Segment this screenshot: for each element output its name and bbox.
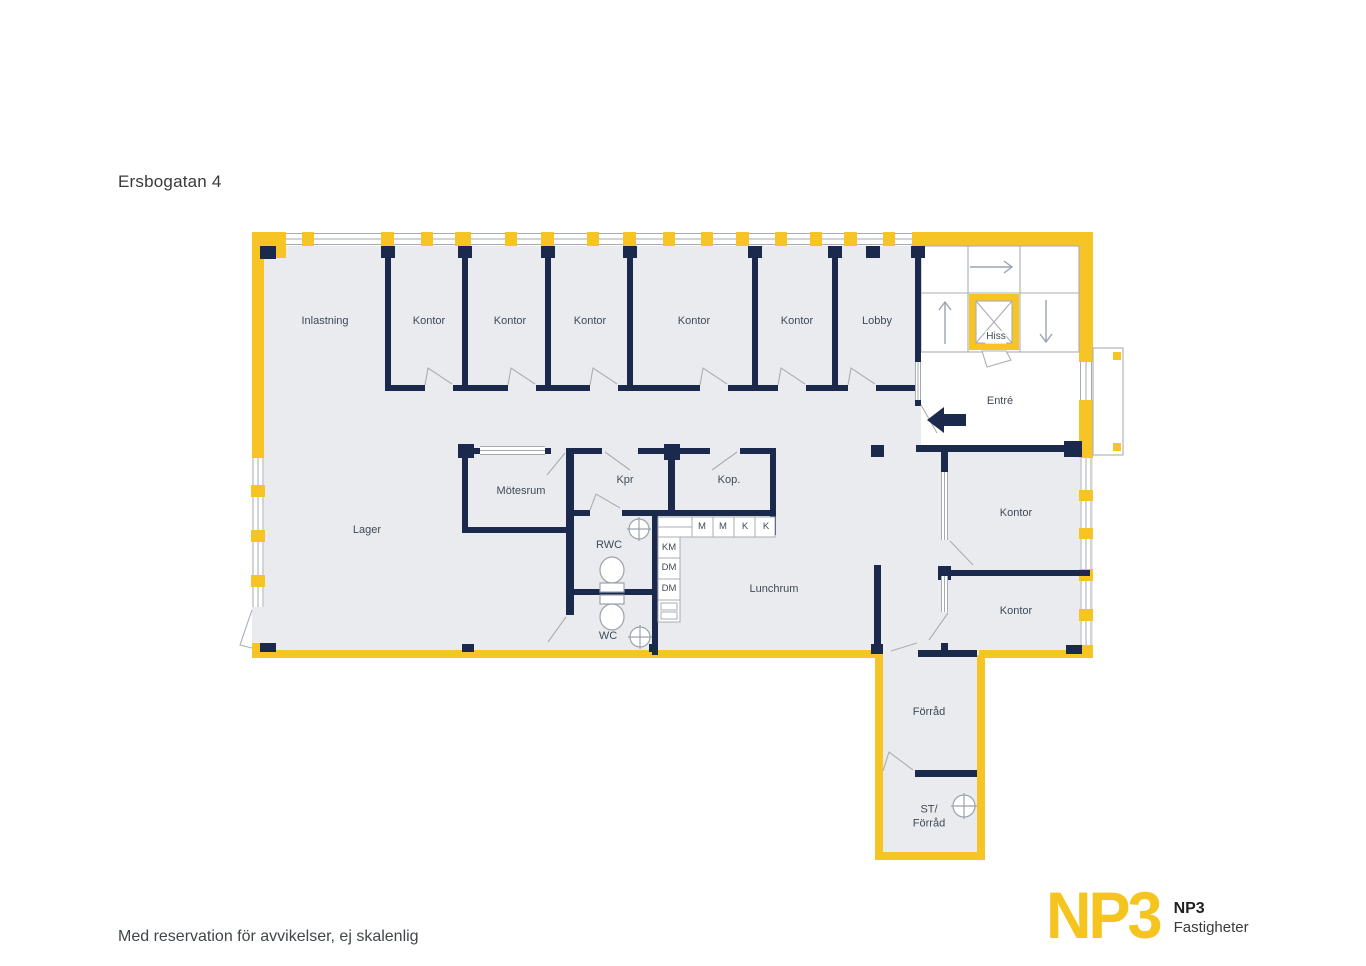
room-label-kpr: Kpr — [616, 474, 633, 488]
room-label-forrad: Förråd — [913, 706, 945, 720]
entrance-canopy — [1093, 348, 1123, 455]
room-label-motesrum: Mötesrum — [497, 485, 546, 499]
np3-logo-company: NP3 — [1174, 900, 1249, 918]
appliance-label-dm-2: DM — [662, 583, 677, 595]
room-label-hiss: Hiss — [985, 331, 1006, 344]
rwc-toilet — [600, 557, 624, 592]
room-label-kontor-1: Kontor — [413, 315, 445, 329]
room-label-st-forrad-line1: ST/ — [913, 803, 945, 817]
appliance-label-m-2: M — [719, 521, 727, 533]
room-label-wc: WC — [599, 630, 617, 644]
appliance-label-k-2: K — [763, 521, 769, 533]
room-label-kontor-7: Kontor — [1000, 605, 1032, 619]
disclaimer-text: Med reservation för avvikelser, ej skale… — [118, 928, 419, 946]
room-label-kontor-3: Kontor — [574, 315, 606, 329]
room-label-kontor-4: Kontor — [678, 315, 710, 329]
room-label-lager: Lager — [353, 524, 381, 538]
np3-logo-mark: NP3 — [1046, 883, 1160, 949]
room-label-kop: Kop. — [718, 474, 741, 488]
appliance-label-km: KM — [662, 542, 676, 554]
room-label-rwc: RWC — [596, 539, 622, 553]
floorplan-page: Ersbogatan 4 — [0, 0, 1366, 966]
room-label-lunchrum: Lunchrum — [750, 583, 799, 597]
np3-logo: NP3 NP3 Fastigheter — [1046, 880, 1306, 952]
floorplan-drawing — [0, 0, 1366, 966]
appliance-label-dm-1: DM — [662, 562, 677, 574]
room-label-kontor-2: Kontor — [494, 315, 526, 329]
appliance-label-m-1: M — [698, 521, 706, 533]
room-label-lobby: Lobby — [862, 315, 892, 329]
room-label-st-forrad-line2: Förråd — [913, 817, 945, 831]
room-label-kontor-5: Kontor — [781, 315, 813, 329]
room-label-entre: Entré — [987, 395, 1013, 409]
np3-logo-fastigheter: Fastigheter — [1174, 919, 1249, 936]
room-label-st-forrad: ST/ Förråd — [913, 803, 945, 831]
np3-logo-wordmark: NP3 Fastigheter — [1174, 896, 1249, 936]
room-label-inlastning: Inlastning — [301, 315, 348, 329]
room-label-kontor-6: Kontor — [1000, 507, 1032, 521]
appliance-label-k-1: K — [742, 521, 748, 533]
wc-toilet — [600, 595, 624, 630]
